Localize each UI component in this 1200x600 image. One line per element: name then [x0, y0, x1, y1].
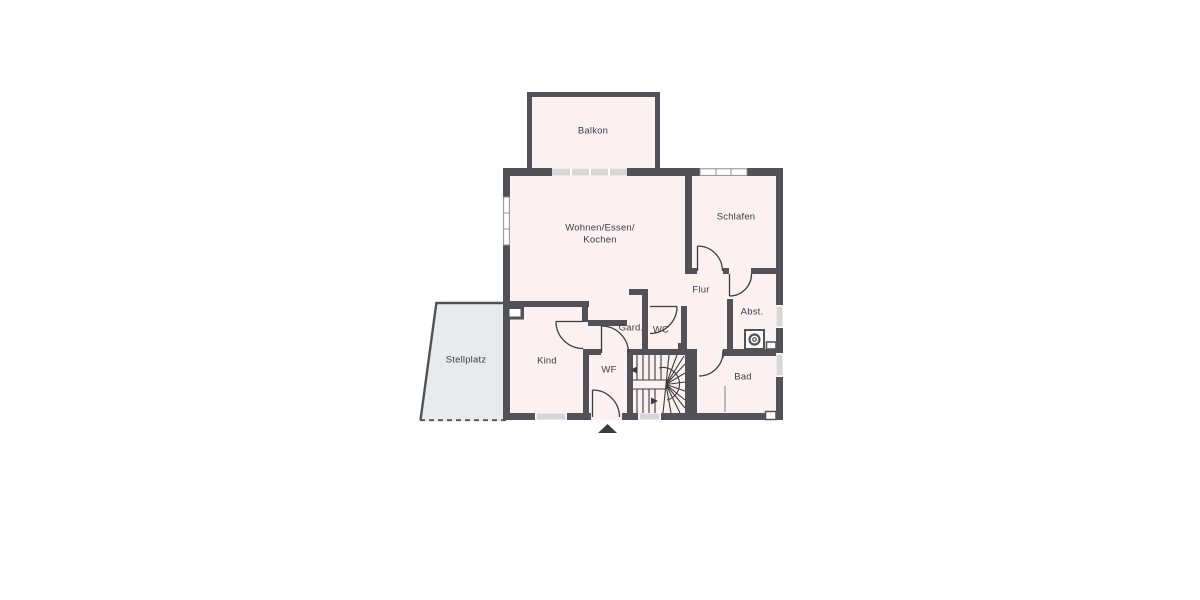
label-garderobe: Gard.: [619, 322, 644, 334]
label-schlafen: Schlafen: [717, 211, 756, 223]
label-abstellraum: Abst.: [741, 306, 764, 318]
label-wc: WC: [653, 324, 669, 336]
label-balkon: Balkon: [578, 125, 608, 137]
label-windfang: WF: [601, 364, 616, 376]
label-wohnen: Wohnen/Essen/ Kochen: [565, 223, 635, 246]
label-bad: Bad: [734, 371, 752, 383]
label-stellplatz: Stellplatz: [446, 354, 487, 366]
label-wohnen-line1: Wohnen/Essen/: [565, 223, 635, 234]
label-flur: Flur: [692, 284, 709, 296]
floorplan-canvas: Balkon Wohnen/Essen/ Kochen Schlafen Flu…: [0, 0, 1200, 600]
room-labels: Balkon Wohnen/Essen/ Kochen Schlafen Flu…: [0, 0, 1200, 600]
label-kind: Kind: [537, 355, 557, 367]
label-wohnen-line2: Kochen: [583, 234, 616, 245]
